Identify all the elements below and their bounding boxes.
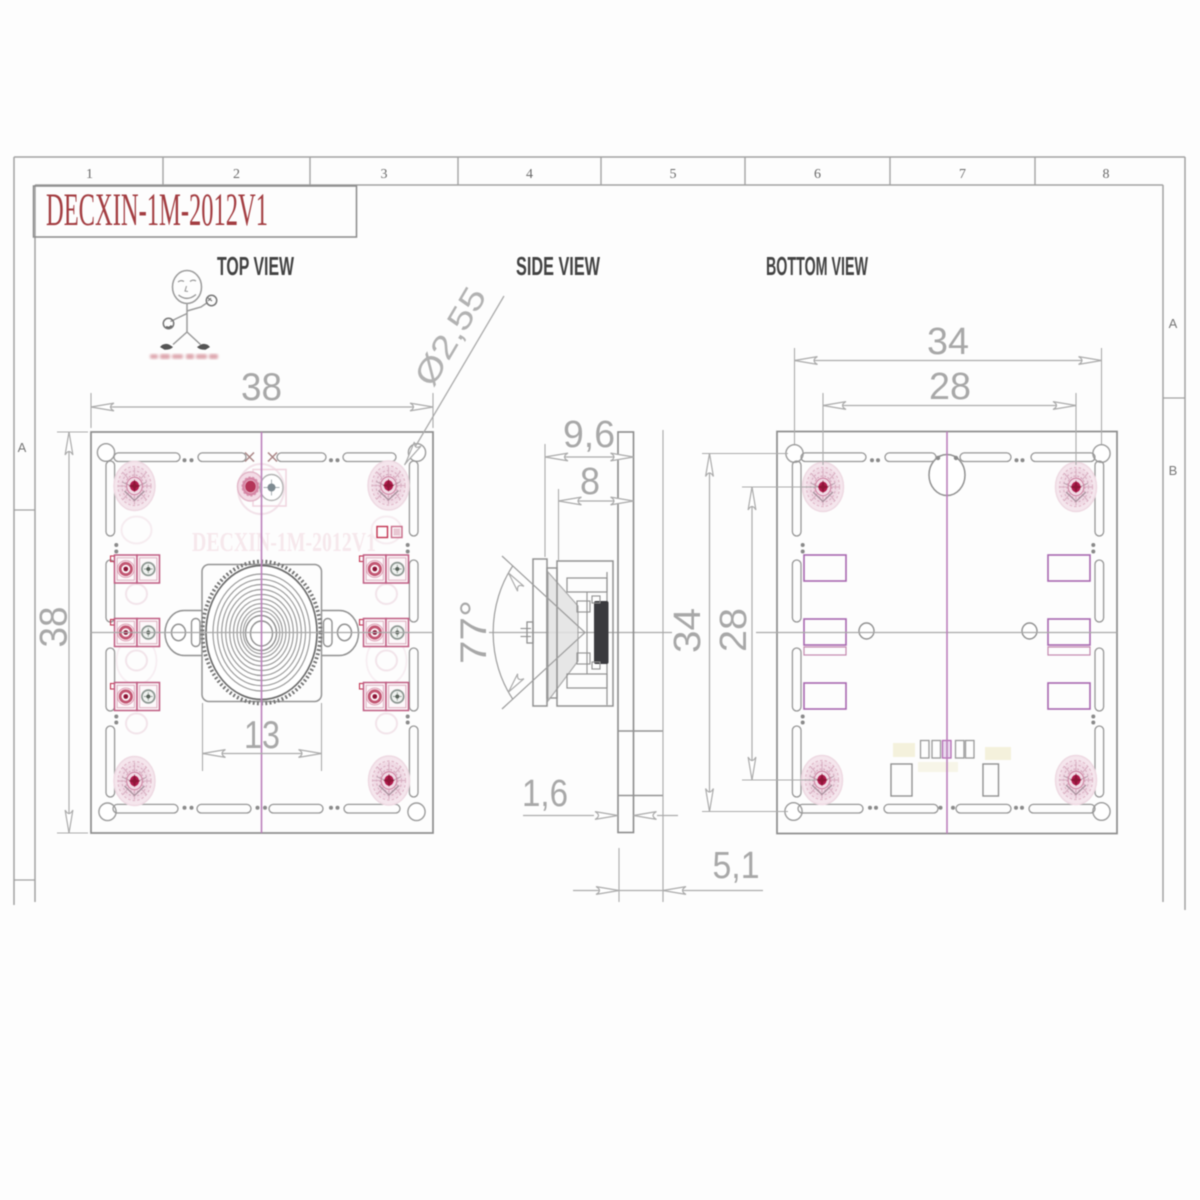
svg-text:3: 3 [381,167,388,182]
svg-text:1: 1 [86,167,93,182]
svg-text:2: 2 [233,167,240,182]
svg-text:A: A [1169,316,1178,331]
svg-text:34: 34 [667,608,709,653]
svg-text:TOP VIEW: TOP VIEW [217,251,294,281]
svg-text:5: 5 [670,167,677,182]
svg-text:SIDE VIEW: SIDE VIEW [516,251,600,281]
svg-text:8: 8 [1103,167,1110,182]
svg-text:5,1: 5,1 [713,845,760,887]
svg-text:34: 34 [927,321,969,363]
svg-text:1,6: 1,6 [522,773,568,815]
svg-text:38: 38 [33,607,76,648]
svg-text:DECXIN-1M-2012V1: DECXIN-1M-2012V1 [46,184,268,236]
svg-text:DECXIN-1M-2012V1: DECXIN-1M-2012V1 [192,527,376,557]
svg-text:4: 4 [526,167,533,182]
svg-text:BOTTOM VIEW: BOTTOM VIEW [766,251,868,281]
svg-text:13: 13 [244,714,280,757]
svg-text:28: 28 [929,366,971,408]
svg-text:B: B [1169,463,1178,478]
svg-text:7: 7 [959,167,966,182]
svg-text:77°: 77° [453,600,494,664]
svg-text:6: 6 [814,167,821,182]
svg-text:A: A [18,440,27,455]
svg-text:28: 28 [713,608,755,652]
svg-text:9,6: 9,6 [563,414,615,456]
svg-text:8: 8 [580,461,600,503]
svg-text:38: 38 [241,366,282,409]
